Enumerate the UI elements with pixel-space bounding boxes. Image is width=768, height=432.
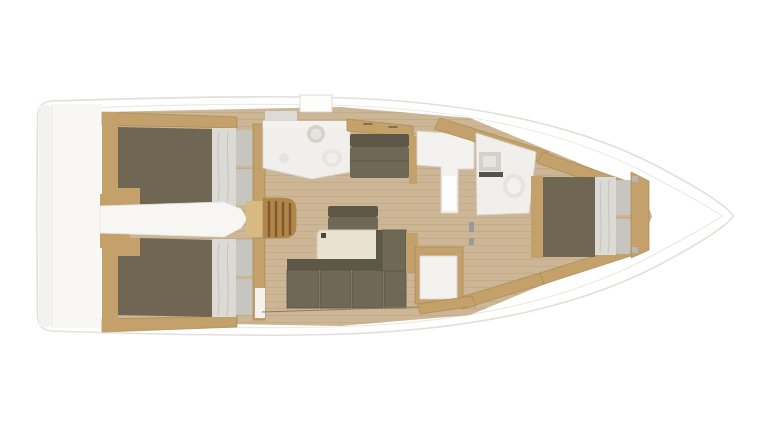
- yacht-floorplan: [0, 0, 768, 432]
- pillow: [236, 169, 253, 205]
- head-board-bracket: [632, 176, 638, 182]
- seat-panel: [420, 256, 457, 299]
- deck-hatch: [300, 95, 332, 112]
- locker-door: [255, 288, 265, 318]
- bed-sheet: [595, 177, 616, 255]
- settee-arm: [409, 136, 417, 184]
- bed-head-board: [631, 172, 649, 258]
- chaise-cushion: [382, 230, 406, 271]
- door-jamb: [469, 222, 474, 232]
- engine-corridor: [100, 202, 247, 237]
- table-leg: [321, 233, 326, 238]
- chaise-back: [376, 230, 382, 271]
- galley-front: [443, 176, 456, 210]
- shower-drain: [279, 153, 289, 163]
- sofa-cushion: [320, 270, 351, 308]
- pillow: [616, 180, 631, 215]
- vanity-slot: [479, 172, 503, 177]
- bed-sheet: [212, 239, 236, 317]
- pillow: [616, 219, 631, 254]
- settee-back: [350, 134, 409, 147]
- sofa-cushion: [287, 270, 319, 308]
- bed-sheet: [212, 128, 236, 206]
- step-platform: [246, 201, 263, 236]
- transom-step: [39, 105, 51, 327]
- bulkhead-wall: [102, 236, 118, 332]
- door-jamb: [469, 238, 474, 245]
- sink-basin: [311, 129, 322, 140]
- bed-foot-board: [531, 176, 543, 258]
- bathroom-floor: [263, 121, 350, 179]
- bench-back: [328, 206, 378, 217]
- sofa-corner-cushion: [384, 270, 406, 308]
- vanity-counter: [263, 121, 350, 128]
- sofa-back: [287, 259, 384, 270]
- pillow: [236, 130, 253, 166]
- settee-seat: [350, 147, 409, 178]
- bulkhead-wall: [102, 112, 118, 208]
- transom-garage: [51, 104, 102, 328]
- pillow: [236, 279, 253, 315]
- head-board-bracket: [632, 247, 638, 253]
- toilet-seat: [507, 178, 521, 194]
- bulkhead-tab: [100, 233, 130, 248]
- pillow: [236, 240, 253, 276]
- sink-basin: [483, 156, 496, 167]
- toilet-seat: [326, 153, 338, 164]
- bed-blanket: [543, 177, 595, 257]
- stern-platform: [39, 104, 103, 328]
- sofa-cushion: [352, 270, 383, 308]
